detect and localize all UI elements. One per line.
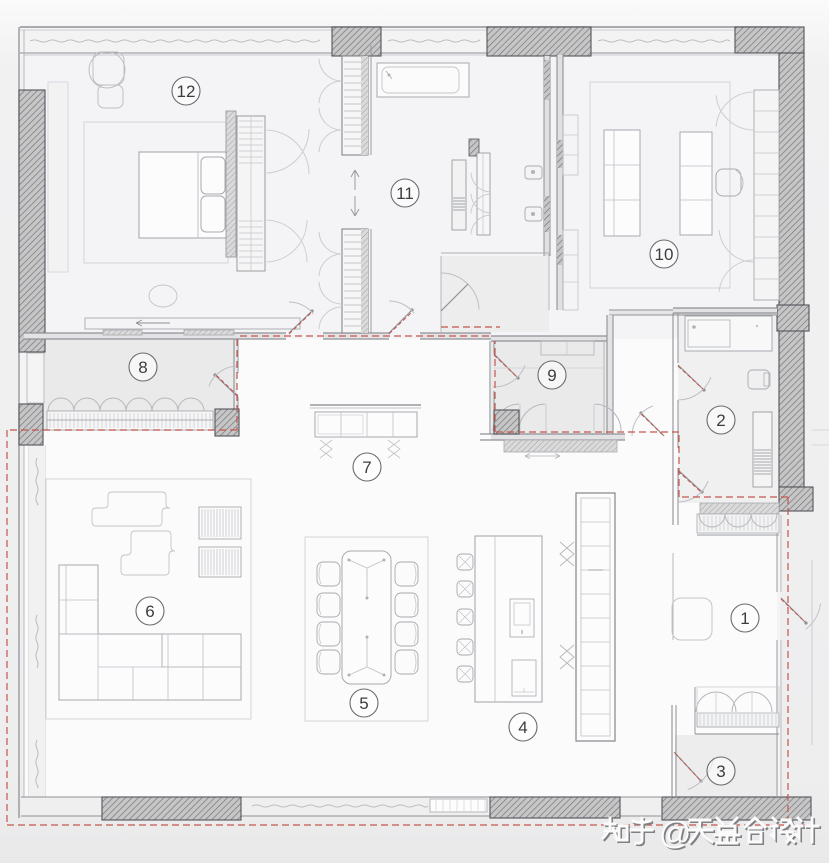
svg-text:11: 11 <box>396 184 414 203</box>
svg-text:2: 2 <box>716 411 725 430</box>
svg-text:10: 10 <box>655 245 674 264</box>
svg-text:8: 8 <box>138 358 147 377</box>
svg-text:3: 3 <box>716 762 725 781</box>
svg-text:@: @ <box>659 815 691 851</box>
svg-text:5: 5 <box>359 694 368 713</box>
svg-text:7: 7 <box>362 458 371 477</box>
svg-text:6: 6 <box>145 602 154 621</box>
svg-text:9: 9 <box>547 366 556 385</box>
svg-text:12: 12 <box>177 82 196 101</box>
svg-text:4: 4 <box>518 718 527 737</box>
svg-text:1: 1 <box>740 609 749 628</box>
